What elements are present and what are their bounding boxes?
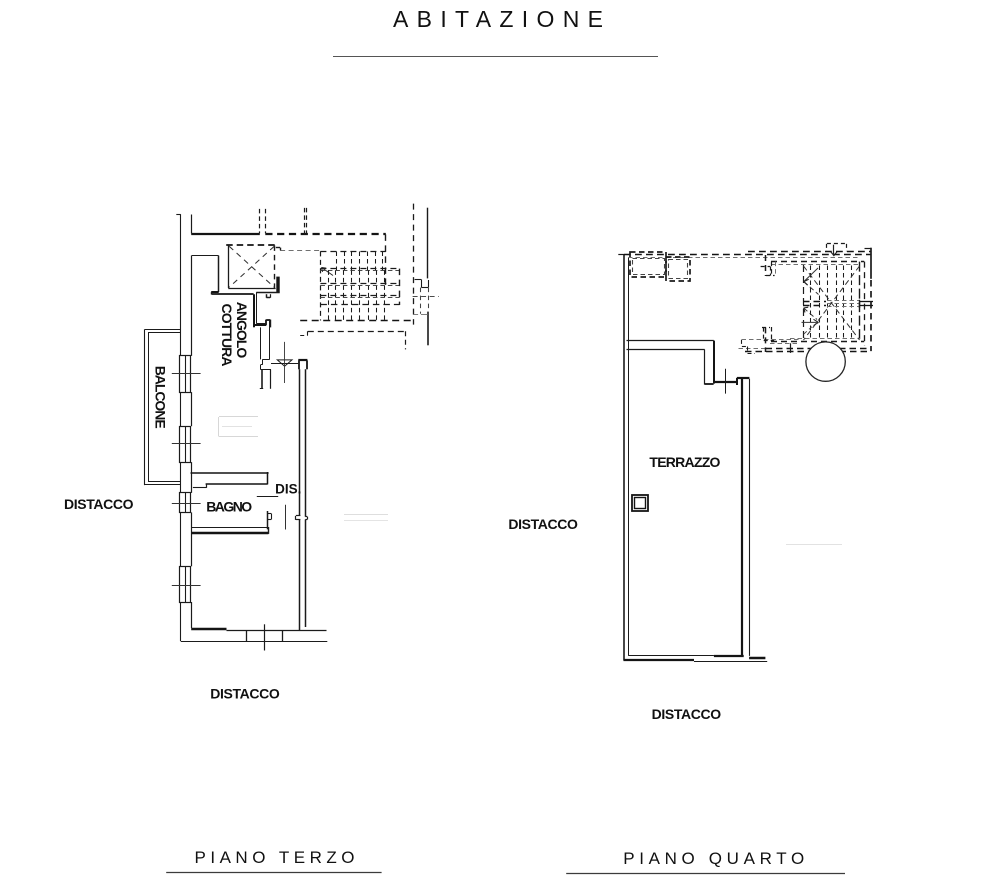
svg-text:DISTACCO: DISTACCO [210,685,280,701]
svg-text:BALCONE: BALCONE [153,366,169,429]
svg-text:DIS.: DIS. [275,481,301,496]
svg-text:DISTACCO: DISTACCO [64,496,134,512]
svg-text:BAGNO: BAGNO [206,498,252,514]
svg-text:TERRAZZO: TERRAZZO [649,454,720,470]
svg-text:COTTURA: COTTURA [219,304,235,367]
svg-text:DISTACCO: DISTACCO [508,516,578,532]
svg-text:DISTACCO: DISTACCO [652,706,722,722]
svg-text:ANGOLO: ANGOLO [234,302,250,359]
svg-text:PIANO QUARTO: PIANO QUARTO [623,849,804,868]
